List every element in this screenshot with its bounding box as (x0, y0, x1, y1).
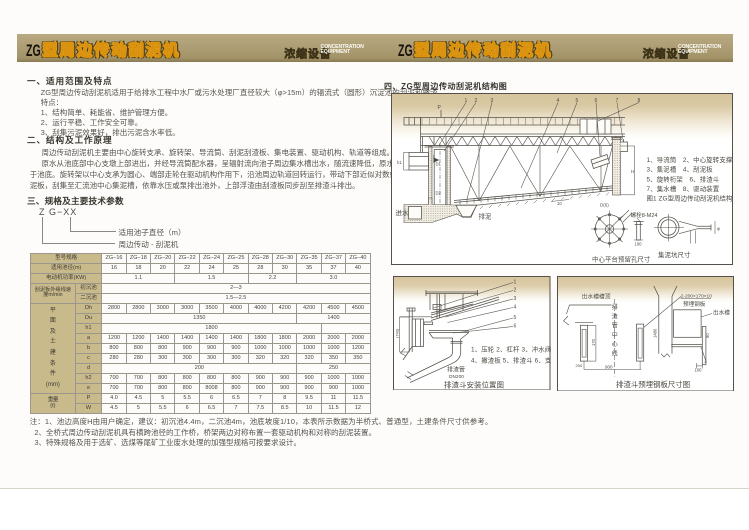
svg-text:螺栓8-M24: 螺栓8-M24 (631, 211, 658, 219)
svg-text:100: 100 (694, 367, 702, 372)
svg-text:100: 100 (635, 242, 643, 247)
svg-text:排泥: 排泥 (479, 212, 492, 221)
svg-text:渣: 渣 (611, 312, 617, 320)
svg-text:D2: D2 (436, 191, 442, 196)
svg-text:1: 1 (514, 279, 517, 285)
svg-text:1480: 1480 (652, 328, 657, 338)
svg-text:D1: D1 (436, 162, 442, 167)
svg-text:h1: h1 (397, 160, 402, 165)
svg-text:心: 心 (611, 341, 617, 348)
svg-text:集泥坑尺寸: 集泥坑尺寸 (658, 250, 691, 259)
svg-text:3: 3 (491, 98, 494, 104)
svg-text:DN200: DN200 (449, 374, 464, 380)
svg-text:进水: 进水 (396, 208, 409, 217)
svg-text:200: 200 (575, 363, 582, 368)
svg-text:8: 8 (638, 98, 641, 104)
svg-text:中心平台预留孔尺寸: 中心平台预留孔尺寸 (592, 255, 651, 264)
svg-text:D(6): D(6) (600, 203, 609, 208)
svg-text:预埋钢板: 预埋钢板 (683, 300, 706, 308)
svg-text:10: 10 (557, 201, 562, 206)
svg-text:排渣管: 排渣管 (447, 365, 465, 373)
svg-text:(740): (740) (395, 327, 400, 337)
svg-text:中: 中 (611, 330, 617, 338)
svg-text:H: H (631, 169, 634, 174)
svg-text:线: 线 (611, 349, 617, 357)
svg-text:900: 900 (605, 364, 613, 369)
svg-text:1、压轮 2、杠杆 3、冲水阀: 1、压轮 2、杠杆 3、冲水阀 (471, 344, 551, 353)
svg-text:2: 2 (514, 287, 517, 293)
svg-text:排渣斗预埋钢板尺寸图: 排渣斗预埋钢板尺寸图 (616, 378, 690, 388)
svg-text:4、撇渣板 5、排渣斗 6、支架: 4、撇渣板 5、排渣斗 6、支架 (471, 355, 551, 364)
svg-text:排渣斗安装位置图: 排渣斗安装位置图 (444, 379, 504, 389)
svg-text:5: 5 (514, 315, 517, 321)
svg-text:出水槽: 出水槽 (713, 308, 730, 316)
svg-text:4: 4 (514, 304, 517, 310)
svg-text:3: 3 (514, 296, 517, 302)
svg-text:φ: φ (717, 226, 720, 231)
svg-text:1: 1 (465, 98, 468, 104)
svg-text:2-200×170×10: 2-200×170×10 (680, 293, 712, 299)
svg-text:4: 4 (557, 98, 560, 104)
svg-text:3、集泥槽 4、刮泥板: 3、集泥槽 4、刮泥板 (647, 165, 714, 174)
svg-text:管: 管 (611, 321, 617, 329)
svg-text:2: 2 (475, 98, 478, 104)
svg-text:7: 7 (616, 98, 619, 104)
svg-text:5、旋转桁架 6、排渣斗: 5、旋转桁架 6、排渣斗 (647, 174, 720, 183)
svg-text:出水槽槽顶: 出水槽槽顶 (581, 292, 610, 300)
svg-text:90: 90 (705, 332, 710, 337)
svg-text:6: 6 (595, 98, 598, 104)
svg-text:图1 ZG型周边传动刮泥机结构图: 图1 ZG型周边传动刮泥机结构图 (647, 194, 734, 203)
svg-text:5: 5 (576, 98, 579, 104)
svg-text:排: 排 (611, 303, 617, 311)
svg-text:170: 170 (590, 338, 595, 346)
svg-text:6: 6 (514, 323, 517, 329)
svg-text:7、集水槽 8、驱动装置: 7、集水槽 8、驱动装置 (647, 184, 720, 193)
svg-text:1、导流筒 2、中心旋转支撑座: 1、导流筒 2、中心旋转支撑座 (647, 155, 734, 164)
